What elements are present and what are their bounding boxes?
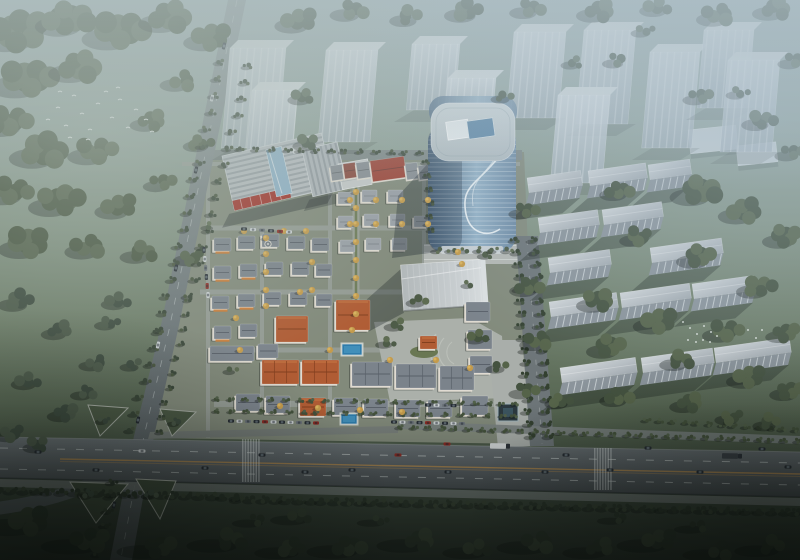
scene-svg xyxy=(0,0,800,560)
corner-dark-br xyxy=(0,0,800,560)
aerial-render-canvas xyxy=(0,0,800,560)
